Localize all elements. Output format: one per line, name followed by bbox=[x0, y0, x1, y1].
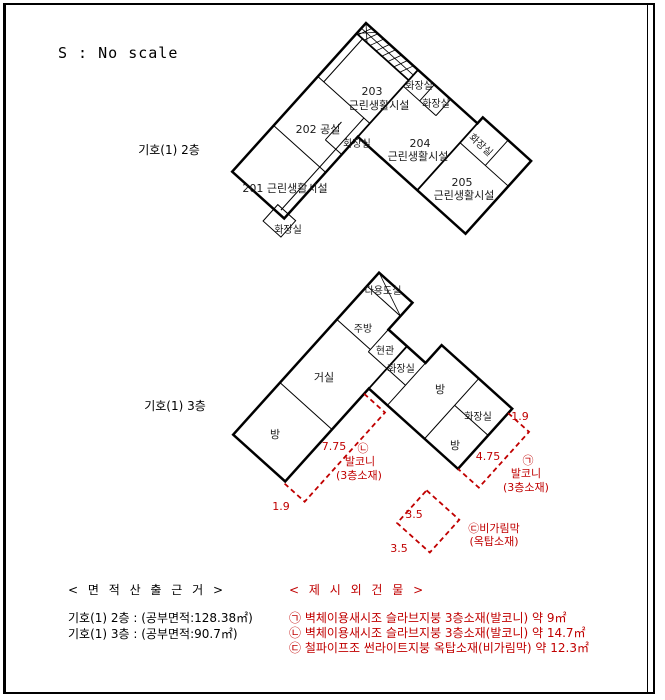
floor2-toilet-mid-label: 화장실 bbox=[343, 138, 371, 150]
room-204-label: 근린생활시설 bbox=[388, 149, 449, 163]
balcony-right-name: 발코니 bbox=[511, 467, 541, 480]
balcony-left-location: (3층소재) bbox=[336, 469, 382, 482]
canopy-side-b-dim: 3.5 bbox=[390, 542, 408, 555]
utility-room-label: 다용도실 bbox=[365, 285, 402, 297]
room-right-bottom-label: 방 bbox=[450, 439, 460, 452]
floor2-toilet-bottom-label: 화장실 bbox=[274, 224, 302, 236]
balcony-left-name: 발코니 bbox=[345, 455, 375, 468]
canopy-name: ㉢비가림막 bbox=[468, 522, 519, 535]
floor3-toilet-top-label: 화장실 bbox=[387, 363, 415, 375]
canopy-side-a-dim: 3.5 bbox=[405, 508, 423, 521]
floor2-plan: 화장실 기호(1) 2층 203 근린생활시설 화장실 화장실 202 공실 화… bbox=[138, 17, 531, 327]
living-room-label: 거실 bbox=[314, 371, 334, 384]
entrance-label: 현관 bbox=[376, 345, 394, 357]
extra-buildings-line-2: ㉡ 벽체이용새시조 슬라브지붕 3층소재(발코니) 약 14.7㎡ bbox=[289, 626, 586, 641]
floor3-plan: 기호(1) 3층 다용도실 주방 현관 화장실 거실 방 방 화장실 방 7.7… bbox=[144, 273, 549, 587]
floor-plan-sheet: S : No scale 화장실 기호(1) 2층 203 근린생활시설 화장실… bbox=[0, 0, 665, 700]
room-202-label: 202 공실 bbox=[296, 123, 341, 136]
balcony-right-width-dim: 1.9 bbox=[511, 410, 529, 423]
floor2-caption: 기호(1) 2층 bbox=[138, 143, 200, 157]
floor2-rotated-geometry: 화장실 bbox=[221, 17, 531, 327]
floor2-toilet-right-label: 화장실 bbox=[466, 131, 495, 158]
floor2-toilet-a-label: 화장실 bbox=[405, 80, 433, 92]
floor3-caption: 기호(1) 3층 bbox=[144, 399, 206, 413]
stairs-hatch bbox=[357, 23, 418, 80]
floor3-toilet-right-label: 화장실 bbox=[464, 411, 492, 423]
room-205-label: 근린생활시설 bbox=[434, 188, 495, 202]
area-basis-title: < 면 적 산 출 근 거 > bbox=[68, 583, 226, 598]
kitchen-label: 주방 bbox=[354, 323, 372, 335]
canopy-location: (옥탑소재) bbox=[469, 535, 518, 548]
room-204-number: 204 bbox=[410, 137, 431, 150]
room-205-number: 205 bbox=[452, 176, 473, 189]
extra-buildings-line-1: ㉠ 벽체이용새시조 슬라브지붕 3층소재(발코니) 약 9㎡ bbox=[289, 611, 566, 626]
balcony-left-width-dim: 1.9 bbox=[272, 500, 290, 513]
room-left-label: 방 bbox=[270, 428, 280, 441]
room-201-label: 201 근린생활시설 bbox=[242, 181, 327, 195]
balcony-right-location: (3층소재) bbox=[503, 481, 549, 494]
floor2-toilet-b-label: 화장실 bbox=[422, 98, 450, 110]
extra-buildings-title: < 제 시 외 건 물 > bbox=[289, 583, 426, 598]
area-basis-line-floor2: 기호(1) 2층 : (공부면적:128.38㎡) bbox=[68, 611, 253, 626]
balcony-left-length-dim: 7.75 bbox=[322, 440, 347, 453]
balcony-right-length-dim: 4.75 bbox=[476, 450, 501, 463]
balcony-right-mark: ㉠ bbox=[523, 454, 534, 467]
room-right-top-label: 방 bbox=[435, 383, 445, 396]
room-203-label: 근린생활시설 bbox=[349, 98, 410, 112]
balcony-left-mark: ㉡ bbox=[358, 442, 369, 455]
area-basis-line-floor3: 기호(1) 3층 : (공부면적:90.7㎡) bbox=[68, 627, 238, 642]
floor2-partition-walls bbox=[235, 17, 531, 312]
extra-buildings-line-3: ㉢ 철파이프조 썬라이트지붕 옥탑소재(비가림막) 약 12.3㎡ bbox=[289, 641, 589, 656]
floor3-partition-walls bbox=[280, 282, 512, 510]
room-203-number: 203 bbox=[362, 85, 383, 98]
